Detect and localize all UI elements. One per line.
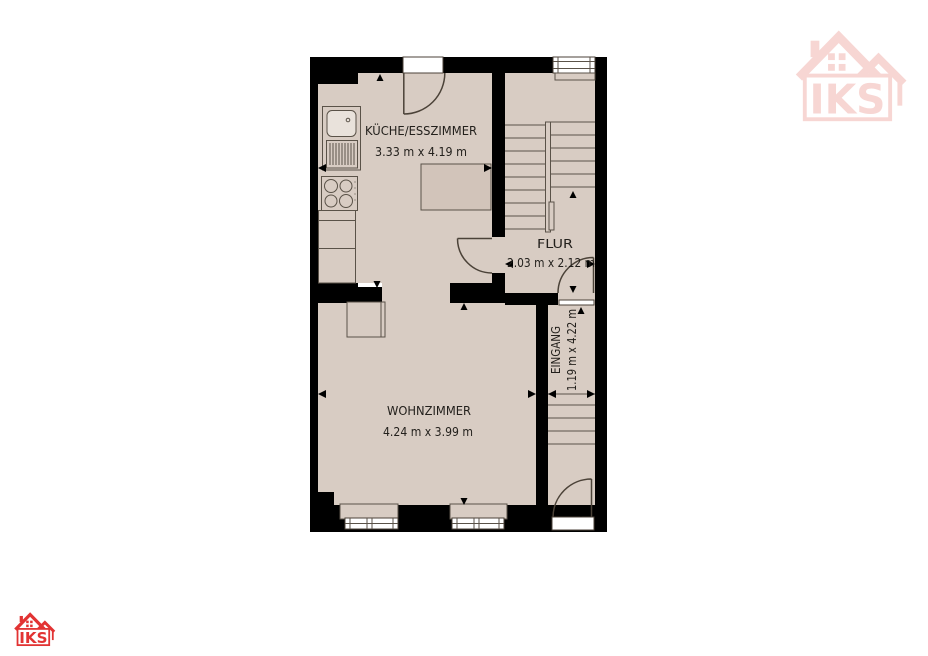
kitchen-dimensions: 3.33 m x 4.19 m: [375, 145, 467, 159]
wall-kitchen-living-left: [318, 283, 358, 303]
floor-plan-svg: KÜCHE/ESSZIMMER 3.33 m x 4.19 m FLUR 2.0…: [0, 0, 928, 656]
iks-logo-watermark: IKS: [799, 37, 904, 124]
kitchen-living-passage: [382, 283, 450, 303]
hallway-door-gap-floor: [492, 237, 505, 273]
logo-windows: [828, 53, 845, 70]
logo-windows: [26, 621, 32, 627]
wall-bottom-left-step: [318, 492, 334, 505]
kitchen-door-opening: [403, 57, 443, 73]
living-room-furniture: [347, 302, 385, 337]
living-room-label: WOHNZIMMER: [387, 404, 471, 418]
kitchen-label: KÜCHE/ESSZIMMER: [365, 122, 477, 138]
wall-top-left-notch: [318, 73, 358, 84]
entrance-label: EINGANG: [549, 326, 563, 374]
wall-right: [595, 57, 607, 532]
wall-kitchen-living-left-step: [358, 287, 382, 303]
wall-kitchen-living-right: [450, 283, 505, 303]
stair-rail-return: [549, 202, 554, 230]
window-living-right: [450, 504, 507, 529]
logo-text: IKS: [19, 629, 47, 647]
window-top: [553, 57, 595, 80]
hallway-label: FLUR: [537, 237, 573, 251]
entrance-door-opening: [552, 517, 594, 530]
sink-icon: [323, 107, 361, 171]
living-room-dimensions: 4.24 m x 3.99 m: [383, 425, 473, 439]
wall-kitchen-hallway-upper: [492, 73, 505, 237]
window-living-left: [340, 504, 398, 529]
kitchen-table: [421, 164, 491, 210]
entrance-dimensions: 1.19 m x 4.22 m: [565, 309, 579, 391]
wall-living-entrance: [536, 303, 548, 532]
logo-text: IKS: [809, 75, 885, 123]
wall-left: [310, 57, 318, 532]
hallway-entrance-threshold: [559, 300, 594, 305]
wall-hallway-entrance: [505, 293, 558, 305]
hallway-dimensions: 2.03 m x 2.12 m: [507, 256, 595, 270]
kitchen-counter: [319, 211, 356, 284]
iks-logo: IKS: [15, 615, 54, 647]
window-top-sill: [555, 73, 595, 80]
sideboard: [347, 302, 385, 337]
floor-plan-page: KÜCHE/ESSZIMMER 3.33 m x 4.19 m FLUR 2.0…: [0, 0, 928, 656]
stove-icon: [322, 177, 358, 211]
